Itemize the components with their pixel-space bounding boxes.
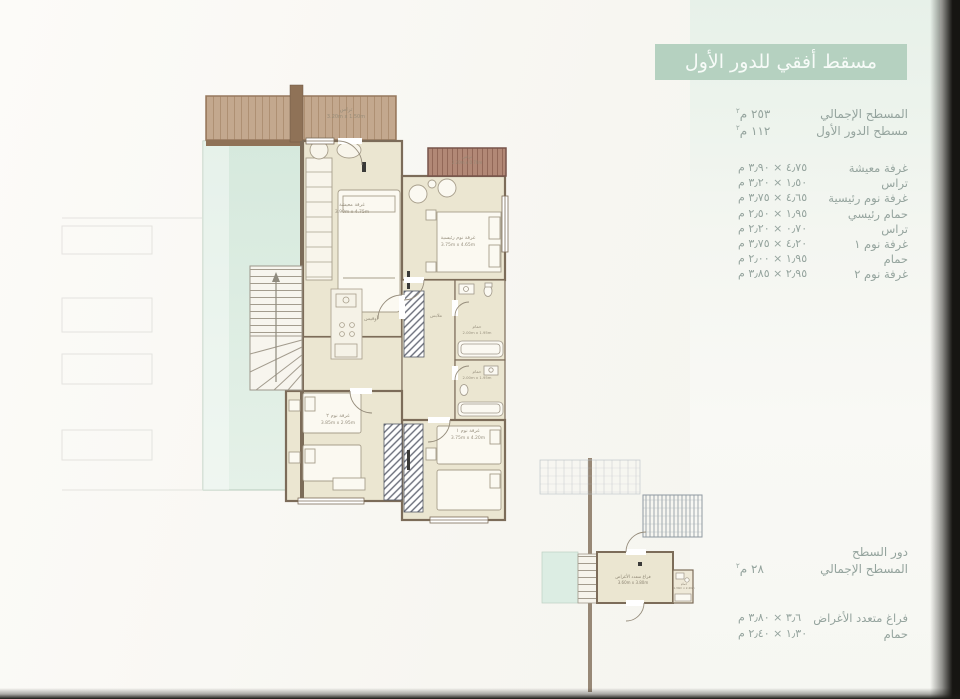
roof-green-patch [542,552,578,603]
kitchen-furniture [331,289,362,359]
room-dims: ٢٫٩٥ × ٣٫٨٥ م [738,267,807,281]
roof-door-gap [626,549,646,555]
room-row: تراس ٠٫٧٠ × ٢٫٢٠ م [738,222,908,236]
room-row: غرفة نوم ٢ ٢٫٩٥ × ٣٫٨٥ م [738,267,908,281]
room-dims: ٣٫٦ × ٣٫٨٠ م [738,611,801,625]
toilet [460,385,468,396]
room-name: غرفة نوم رئيسية [828,191,908,205]
room-name: حمام [884,627,908,641]
room-row: تراس ١٫٥٠ × ٣٫٢٠ م [738,176,908,190]
terrace-small: تراس 2.20m x 0.70m [428,148,506,176]
terrace-small-dims: 2.20m x 0.70m [452,160,483,165]
bathtub [675,594,691,601]
room-dims: ١٫٥٠ × ٣٫٢٠ م [738,176,807,190]
area-row: المسطح الإجمالي ٢٨ م٢ [736,562,908,576]
area-value: ١١٢ م٢ [736,124,770,138]
terrace-top-deck: تراس 3.20m x 1.50m [206,85,396,146]
scan-edge-right [930,0,960,699]
bedroom1-dims: 3.75m x 4.20m [451,435,485,441]
area-row: مسطح الدور الأول ١١٢ م٢ [736,124,908,138]
room-name: فراغ متعدد الأغراض [813,611,908,625]
pergola-light [540,460,640,494]
roof-floor-title: دور السطح [738,545,908,559]
office-label: أوفيس [364,315,379,322]
nightstand [426,262,436,272]
room-dims: ٠٫٧٠ × ٢٫٢٠ م [738,222,807,236]
nightstand [289,400,300,411]
sink [484,366,498,375]
master-label: غرفة نوم رئيسية [441,235,476,241]
terrace-small-label: تراس [462,154,473,159]
living-dims: 3.90m x 4.75m [335,209,369,215]
room-row: غرفة نوم ١ ٤٫٢٠ × ٣٫٧٥ م [738,237,908,251]
bedroom1-label: غرفة نوم ١ [456,428,480,434]
room-dims: ٤٫٢٠ × ٣٫٧٥ م [738,237,807,251]
door-leaf-mark [362,162,366,172]
oval-table [337,142,361,158]
room-row: غرفة معيشة ٤٫٧٥ × ٣٫٩٠ م [738,161,908,175]
staircase [250,266,302,390]
area-label: المسطح الإجمالي [820,562,908,576]
armchair [438,179,456,197]
corridor-closet [404,291,424,357]
room-name: تراس [881,176,908,190]
room-dims: ٤٫٦٥ × ٣٫٧٥ م [738,191,807,205]
nightstand [426,210,436,220]
room-dims: ١٫٣٠ × ٢٫٤٠ م [738,627,807,641]
shared-bath-label: حمام [473,369,482,374]
nightstand [289,452,300,463]
party-wall-post [290,85,303,142]
room-name: غرفة نوم ٢ [854,267,908,281]
door-leaf-mark [407,450,410,470]
master-bath-dims: 2.00m x 1.95m [463,330,492,335]
roof-door-leaf-mark [638,562,642,566]
room-row: غرفة نوم رئيسية ٤٫٦٥ × ٣٫٧٥ م [738,191,908,205]
master-bath-label: حمام [473,324,482,329]
roof-plan: فراغ متعدد الأغراض 3.60m x 3.80m حمام 1.… [540,458,702,692]
roof-room-dims: 3.60m x 3.80m [618,580,649,585]
side-table [428,180,436,188]
brochure-page: تراس 3.20m x 1.50m تراس 2.20m x 0.70m [0,0,960,699]
sink [676,573,684,579]
bed [437,470,501,510]
closet-label: ملابس [430,314,443,319]
ghost-adjacent-unit [62,218,202,490]
room-row: حمام ١٫٣٠ × ٢٫٤٠ م [738,627,908,641]
room-name: حمام رئيسي [848,207,908,221]
floor-plan-canvas: تراس 3.20m x 1.50m تراس 2.20m x 0.70m [0,0,960,699]
terrace-top-dims: 3.20m x 1.50m [327,114,365,120]
room-name: تراس [881,222,908,236]
room-row: حمام ١٫٩٥ × ٢٫٠٠ م [738,252,908,266]
area-value: ٢٨ م٢ [736,562,764,576]
page-title: مسقط أفقي للدور الأول [655,44,907,80]
bedroom2-dims: 3.85m x 2.95m [321,420,355,426]
room-name: حمام [884,252,908,266]
pergola-dense [643,495,702,537]
living-label: غرفة معيشة [339,202,365,208]
room-dims: ٤٫٧٥ × ٣٫٩٠ م [738,161,807,175]
scan-edge-bottom [0,688,960,699]
terrace-top-label: تراس [340,107,353,113]
roof-bath-dims: 1.30m x 2.40m [673,586,695,590]
armchair [409,185,427,203]
nightstand [426,448,436,460]
sink [459,284,474,294]
shared-bath-dims: 2.00m x 1.95m [463,375,492,380]
room-row: حمام رئيسي ١٫٩٥ × ٢٫٥٠ م [738,207,908,221]
room-name: غرفة معيشة [849,161,908,175]
area-label: المسطح الإجمالي [820,107,908,121]
bedroom2-label: غرفة نوم ٢ [326,413,350,419]
master-dims: 3.75m x 4.65m [441,242,475,248]
room-row: فراغ متعدد الأغراض ٣٫٦ × ٣٫٨٠ م [738,611,908,625]
area-value: ٢٥٣ م٢ [736,107,770,121]
master-bed [437,212,501,272]
area-label: مسطح الدور الأول [816,124,908,138]
room-name: غرفة نوم ١ [854,237,908,251]
roof-room-label: فراغ متعدد الأغراض [615,573,650,580]
bathtub [458,341,503,357]
room-dims: ١٫٩٥ × ٢٫٠٠ م [738,252,807,266]
area-row: المسطح الإجمالي ٢٥٣ م٢ [736,107,908,121]
room-dims: ١٫٩٥ × ٢٫٥٠ م [738,207,807,221]
dresser [333,478,365,490]
